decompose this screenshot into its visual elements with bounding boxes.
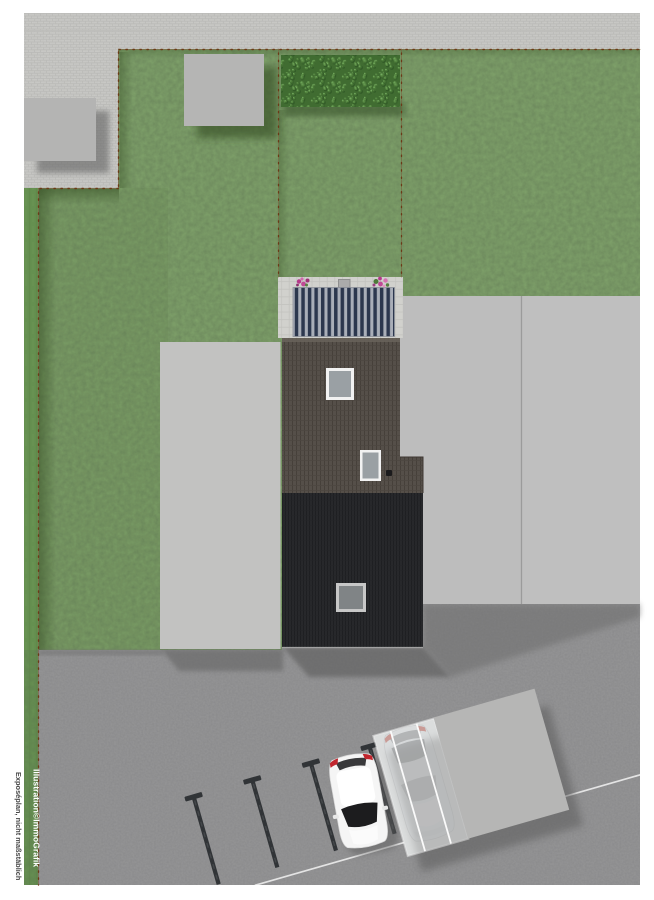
svg-text:Illustration©ImmoGrafik: Illustration©ImmoGrafik (32, 769, 42, 867)
svg-text:Exposéplan, nicht maßstäblich: Exposéplan, nicht maßstäblich (14, 772, 23, 881)
